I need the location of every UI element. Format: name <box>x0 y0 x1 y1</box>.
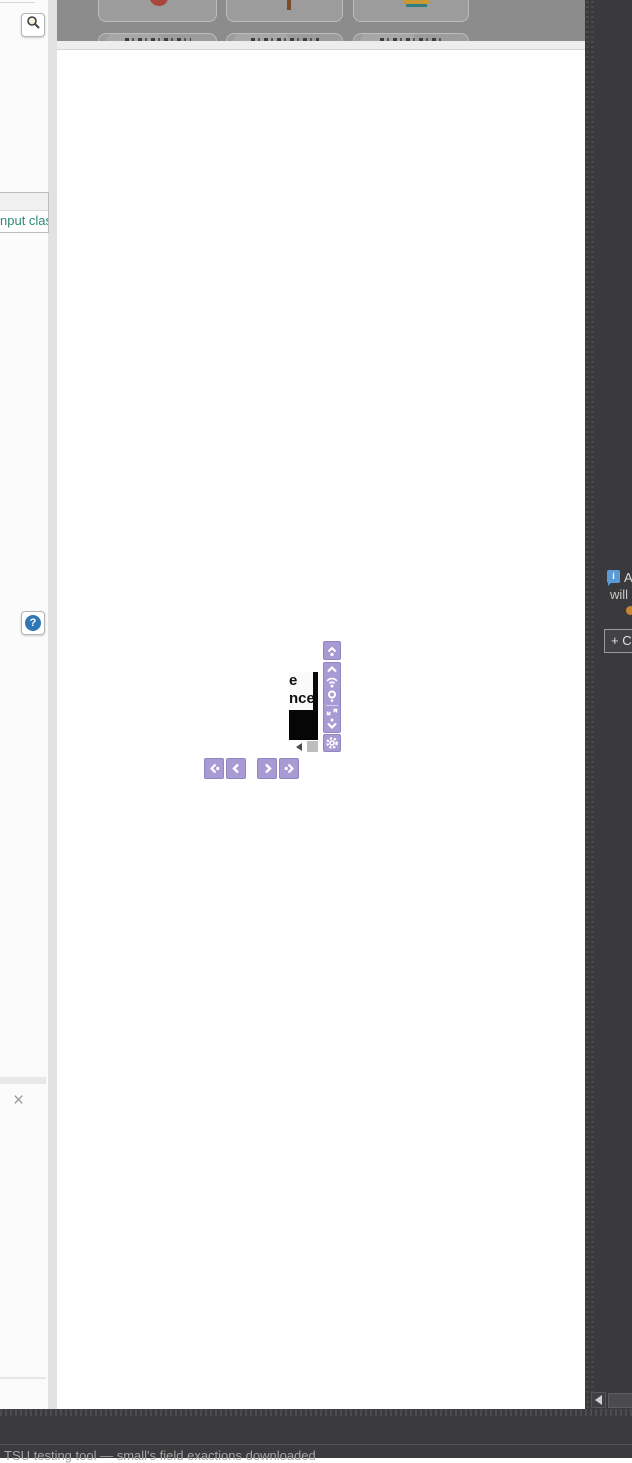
vertical-toolbar[interactable] <box>323 662 341 733</box>
separator-strip <box>57 41 585 50</box>
jump-to-top-icon <box>326 644 338 657</box>
left-panel-divider <box>0 1077 46 1084</box>
go-last-button[interactable] <box>279 758 299 779</box>
close-icon[interactable]: × <box>13 1091 24 1110</box>
go-first-icon <box>208 762 221 775</box>
scroll-left-arrow-icon[interactable] <box>296 743 302 751</box>
scroll-left-button[interactable] <box>591 1392 606 1408</box>
go-next-button[interactable] <box>257 758 277 779</box>
target-circle-icon[interactable] <box>326 690 338 703</box>
scrollbar-thumb[interactable] <box>307 741 318 752</box>
jump-to-top-button[interactable] <box>323 641 341 660</box>
settings-gear-icon <box>325 736 339 750</box>
panel-hatch-texture <box>591 0 594 1458</box>
go-last-icon <box>283 762 296 775</box>
fit-to-screen-icon[interactable] <box>326 708 338 716</box>
magnifier-icon <box>26 15 41 35</box>
magnifier-black-bar <box>313 672 318 710</box>
code-tooltip-text: nput class <box>0 211 48 231</box>
magnifier-scrollbar[interactable] <box>295 741 321 753</box>
help-button[interactable]: ? <box>21 611 45 635</box>
go-previous-button[interactable] <box>226 758 246 779</box>
status-text: TSU testing tool — small's field exactio… <box>4 1448 316 1463</box>
toolbar-divider <box>326 705 338 706</box>
create-button[interactable]: + C <box>604 629 632 653</box>
card-image-fragment <box>287 0 291 10</box>
go-next-icon <box>261 762 274 775</box>
bottom-status-bar: TSU testing tool — small's field exactio… <box>0 1409 632 1458</box>
bar-hatch-texture <box>0 1409 632 1416</box>
chevron-up-icon[interactable] <box>326 665 338 674</box>
main-content-area <box>57 0 585 1409</box>
question-mark-icon: ? <box>25 615 41 631</box>
card <box>353 33 469 41</box>
card <box>226 0 343 22</box>
scrollbar-thumb[interactable] <box>608 1393 632 1408</box>
card <box>226 33 343 41</box>
info-icon: i <box>607 570 620 583</box>
signal-icon[interactable] <box>325 676 339 688</box>
card <box>98 33 217 41</box>
go-previous-icon <box>230 762 243 775</box>
magnifier-black-region <box>289 710 318 740</box>
left-panel-top-edge <box>0 2 35 3</box>
right-panel: i A will + C <box>585 0 632 1458</box>
dimmed-card-grid <box>57 0 585 41</box>
info-text: will <box>610 587 628 602</box>
card-image-fragment <box>150 0 168 6</box>
scroll-left-arrow-icon <box>595 1395 602 1405</box>
info-text: A <box>624 570 632 585</box>
code-tooltip-header <box>0 193 48 211</box>
go-first-button[interactable] <box>204 758 224 779</box>
search-button[interactable] <box>21 13 45 37</box>
code-inspect-tooltip: nput class <box>0 192 49 233</box>
panel-hatch-texture <box>586 0 589 1458</box>
panel-gutter <box>48 0 57 1409</box>
card <box>98 0 217 22</box>
left-panel-divider-bottom <box>0 1377 46 1379</box>
card-image-fragment <box>406 4 427 7</box>
magnifier-popup: e nce <box>289 672 318 740</box>
bar-divider <box>0 1444 632 1445</box>
status-dot <box>626 606 632 615</box>
card <box>353 0 469 22</box>
settings-button[interactable] <box>323 734 341 752</box>
jump-to-bottom-icon[interactable] <box>326 718 338 730</box>
